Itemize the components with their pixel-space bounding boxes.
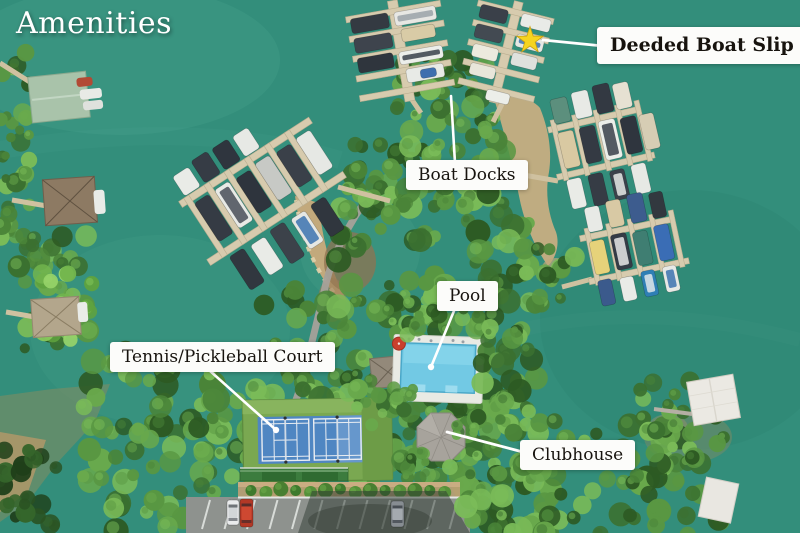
car-gray <box>391 501 404 527</box>
leader-dot-pool <box>428 364 434 370</box>
car-white <box>227 500 239 525</box>
label-deeded-boat-slip: Deeded Boat Slip <box>597 27 800 64</box>
page-title: Amenities <box>16 6 172 41</box>
label-clubhouse: Clubhouse <box>520 440 635 470</box>
amenities-map: Amenities Deeded Boat Slip Boat Docks Po… <box>0 0 800 533</box>
label-tennis-pickleball-court: Tennis/Pickleball Court <box>110 342 335 372</box>
label-pool: Pool <box>437 281 498 311</box>
parking-lot <box>186 491 470 533</box>
car-red <box>240 499 253 527</box>
covered-dock-white-roof <box>687 374 741 425</box>
aerial-photo <box>0 0 800 533</box>
label-boat-docks: Boat Docks <box>406 160 528 190</box>
leader-dot-tennis <box>273 427 279 433</box>
green-roof-shed <box>240 468 348 481</box>
